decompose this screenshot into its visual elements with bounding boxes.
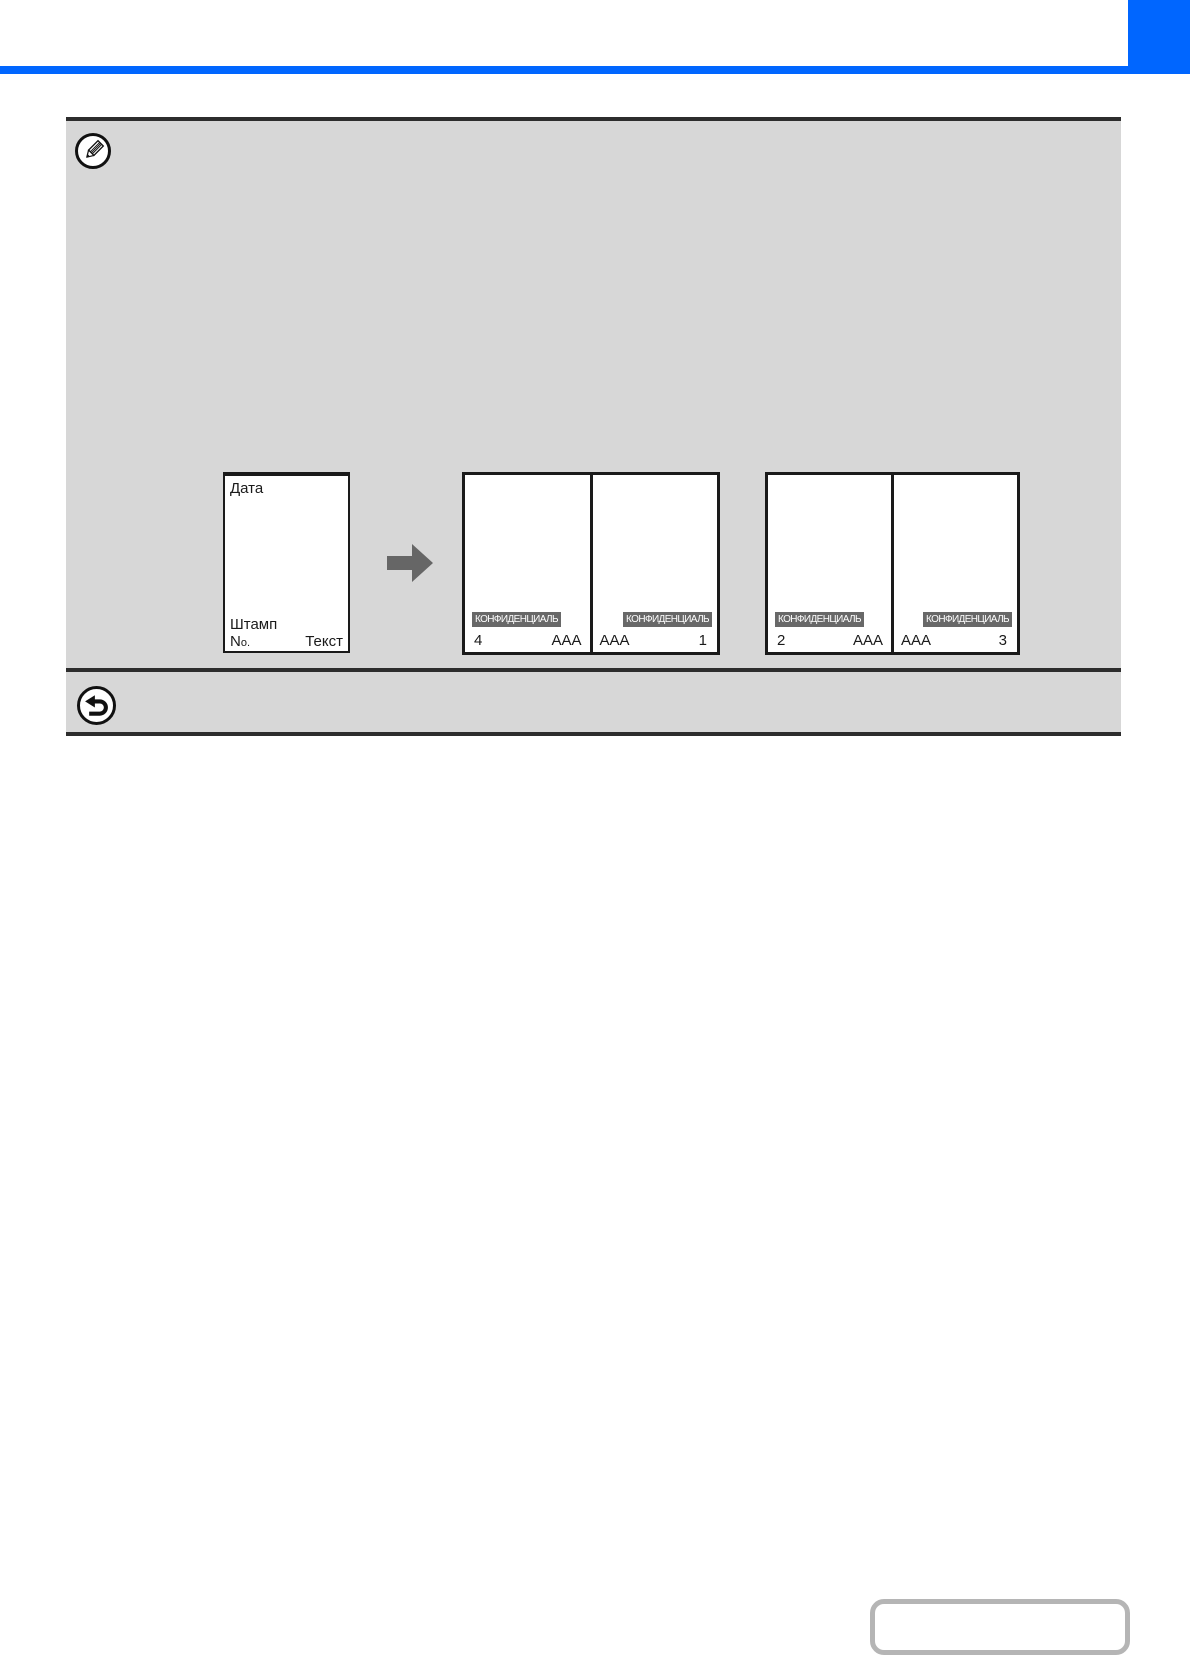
page-text: AAA <box>901 633 931 649</box>
page-text: AAA <box>551 633 581 649</box>
page-number: 1 <box>699 633 707 649</box>
diagram-original-page: Дата Штамп No. Текст <box>223 472 350 653</box>
pencil-icon <box>78 136 108 166</box>
page-number: 4 <box>474 633 482 649</box>
page-number-label: No. <box>230 634 250 651</box>
page-text: AAA <box>853 633 883 649</box>
spread1-left-page: КОНФИДЕНЦИАЛЬ 4 AAA <box>465 475 593 652</box>
confidential-stamp: КОНФИДЕНЦИАЛЬ <box>623 612 712 627</box>
blue-divider-rule <box>0 66 1190 74</box>
footer-bar <box>66 672 1121 732</box>
panel-bottom-border <box>66 732 1121 736</box>
chapter-corner-marker <box>1128 0 1190 74</box>
date-label: Дата <box>230 481 263 496</box>
page-text: AAA <box>600 633 630 649</box>
manual-page: { "colors": { "accent_blue": "#0066ff", … <box>0 0 1190 1656</box>
confidential-stamp: КОНФИДЕНЦИАЛЬ <box>775 612 864 627</box>
page-number: 2 <box>777 633 785 649</box>
diagram-spread-1: КОНФИДЕНЦИАЛЬ 4 AAA AAA КОНФИДЕНЦИАЛЬ 1 <box>462 472 720 655</box>
right-arrow-icon <box>387 543 433 583</box>
spread2-right-page: AAA КОНФИДЕНЦИАЛЬ 3 <box>894 475 1017 652</box>
diagram-spread-2: КОНФИДЕНЦИАЛЬ 2 AAA AAA КОНФИДЕНЦИАЛЬ 3 <box>765 472 1020 655</box>
page-link-box[interactable] <box>870 1599 1130 1655</box>
return-back-button[interactable] <box>77 686 116 725</box>
pencil-note-icon <box>75 133 111 169</box>
confidential-stamp: КОНФИДЕНЦИАЛЬ <box>472 612 561 627</box>
page-number: 3 <box>999 633 1007 649</box>
text-label: Текст <box>305 634 343 649</box>
spread2-left-page: КОНФИДЕНЦИАЛЬ 2 AAA <box>768 475 894 652</box>
note-panel: Дата Штамп No. Текст КОНФИДЕНЦИАЛЬ 4 AAA… <box>66 117 1121 736</box>
note-panel-body: Дата Штамп No. Текст КОНФИДЕНЦИАЛЬ 4 AAA… <box>66 121 1121 668</box>
stamp-label: Штамп <box>230 617 277 632</box>
spread1-right-page: AAA КОНФИДЕНЦИАЛЬ 1 <box>593 475 718 652</box>
return-back-icon <box>81 690 112 721</box>
confidential-stamp: КОНФИДЕНЦИАЛЬ <box>923 612 1012 627</box>
